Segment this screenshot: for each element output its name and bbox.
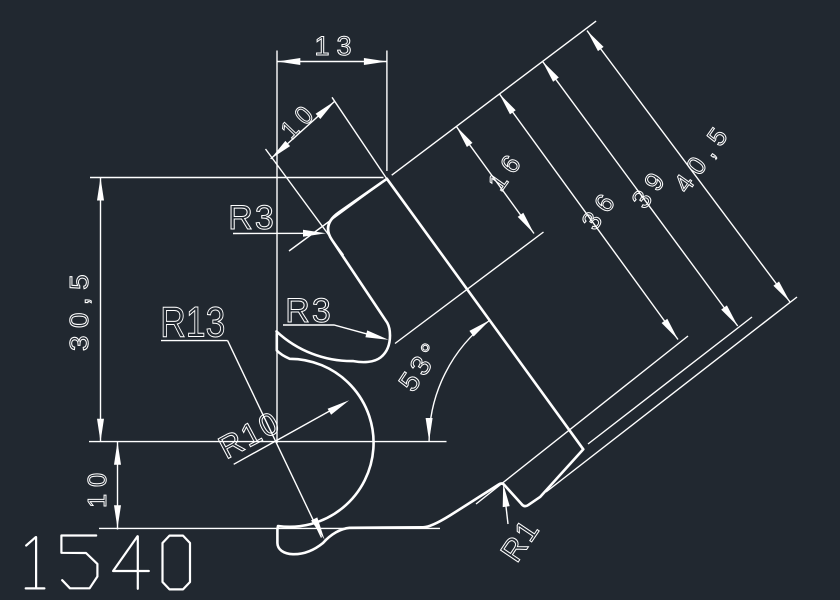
svg-text:13: 13 <box>314 31 358 61</box>
svg-text:R3: R3 <box>285 292 332 330</box>
svg-text:10: 10 <box>82 466 112 508</box>
svg-text:30,5: 30,5 <box>64 267 94 351</box>
svg-text:R3: R3 <box>228 199 275 237</box>
svg-text:R13: R13 <box>160 299 225 347</box>
